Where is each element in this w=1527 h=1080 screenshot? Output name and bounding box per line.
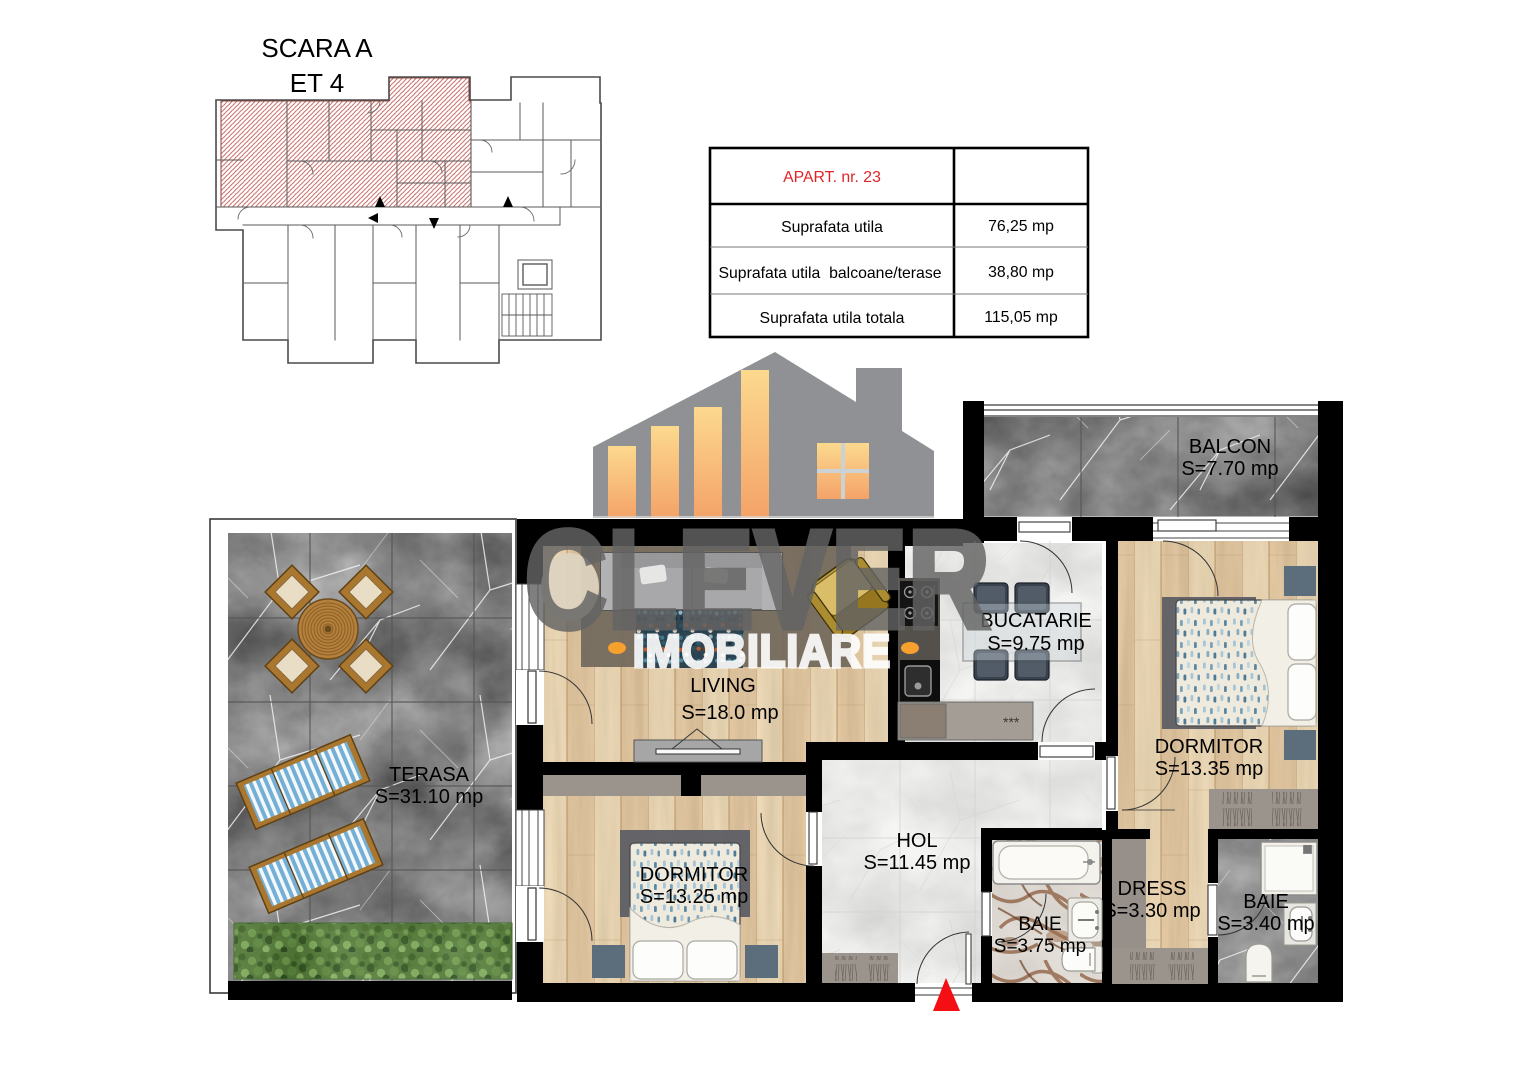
svg-text:115,05 mp: 115,05 mp — [984, 309, 1058, 326]
svg-text:HOL: HOL — [896, 830, 937, 852]
svg-text:BUCATARIE: BUCATARIE — [980, 610, 1092, 632]
svg-text:S=7.70 mp: S=7.70 mp — [1181, 458, 1278, 480]
svg-text:S=13.25 mp: S=13.25 mp — [640, 886, 748, 908]
svg-text:LIVING: LIVING — [690, 675, 756, 697]
svg-text:76,25 mp: 76,25 mp — [988, 218, 1054, 235]
svg-text:S=3.75 mp: S=3.75 mp — [994, 936, 1086, 957]
svg-text:ET 4: ET 4 — [290, 68, 344, 98]
svg-text:IMOBILIARE: IMOBILIARE — [633, 626, 891, 677]
svg-text:Suprafata utila totala: Suprafata utila totala — [760, 310, 905, 327]
svg-text:***: *** — [1003, 714, 1020, 730]
svg-text:APART. nr. 23: APART. nr. 23 — [783, 169, 881, 186]
svg-text:S=11.45 mp: S=11.45 mp — [864, 852, 971, 874]
svg-text:S=31.10 mp: S=31.10 mp — [375, 786, 483, 808]
svg-text:DORMITOR: DORMITOR — [1155, 736, 1264, 758]
svg-text:S=13.35 mp: S=13.35 mp — [1155, 758, 1263, 780]
svg-text:38,80 mp: 38,80 mp — [988, 264, 1054, 281]
svg-text:S=9.75 mp: S=9.75 mp — [987, 633, 1084, 655]
svg-text:Suprafata utila balcoane/tera: Suprafata utila balcoane/terase — [718, 265, 941, 282]
svg-text:DRESS: DRESS — [1118, 878, 1187, 900]
svg-text:BALCON: BALCON — [1189, 436, 1271, 458]
svg-text:BAIE: BAIE — [1243, 891, 1289, 913]
svg-text:S=3.40 mp: S=3.40 mp — [1217, 913, 1314, 935]
svg-text:TERASA: TERASA — [389, 764, 470, 786]
svg-text:Suprafata utila: Suprafata utila — [781, 219, 883, 236]
svg-text:DORMITOR: DORMITOR — [640, 864, 749, 886]
svg-text:BAIE: BAIE — [1018, 914, 1061, 935]
svg-text:S=3.30 mp: S=3.30 mp — [1103, 900, 1200, 922]
svg-text:SCARA A: SCARA A — [261, 33, 373, 63]
svg-text:S=18.0 mp: S=18.0 mp — [681, 702, 778, 724]
